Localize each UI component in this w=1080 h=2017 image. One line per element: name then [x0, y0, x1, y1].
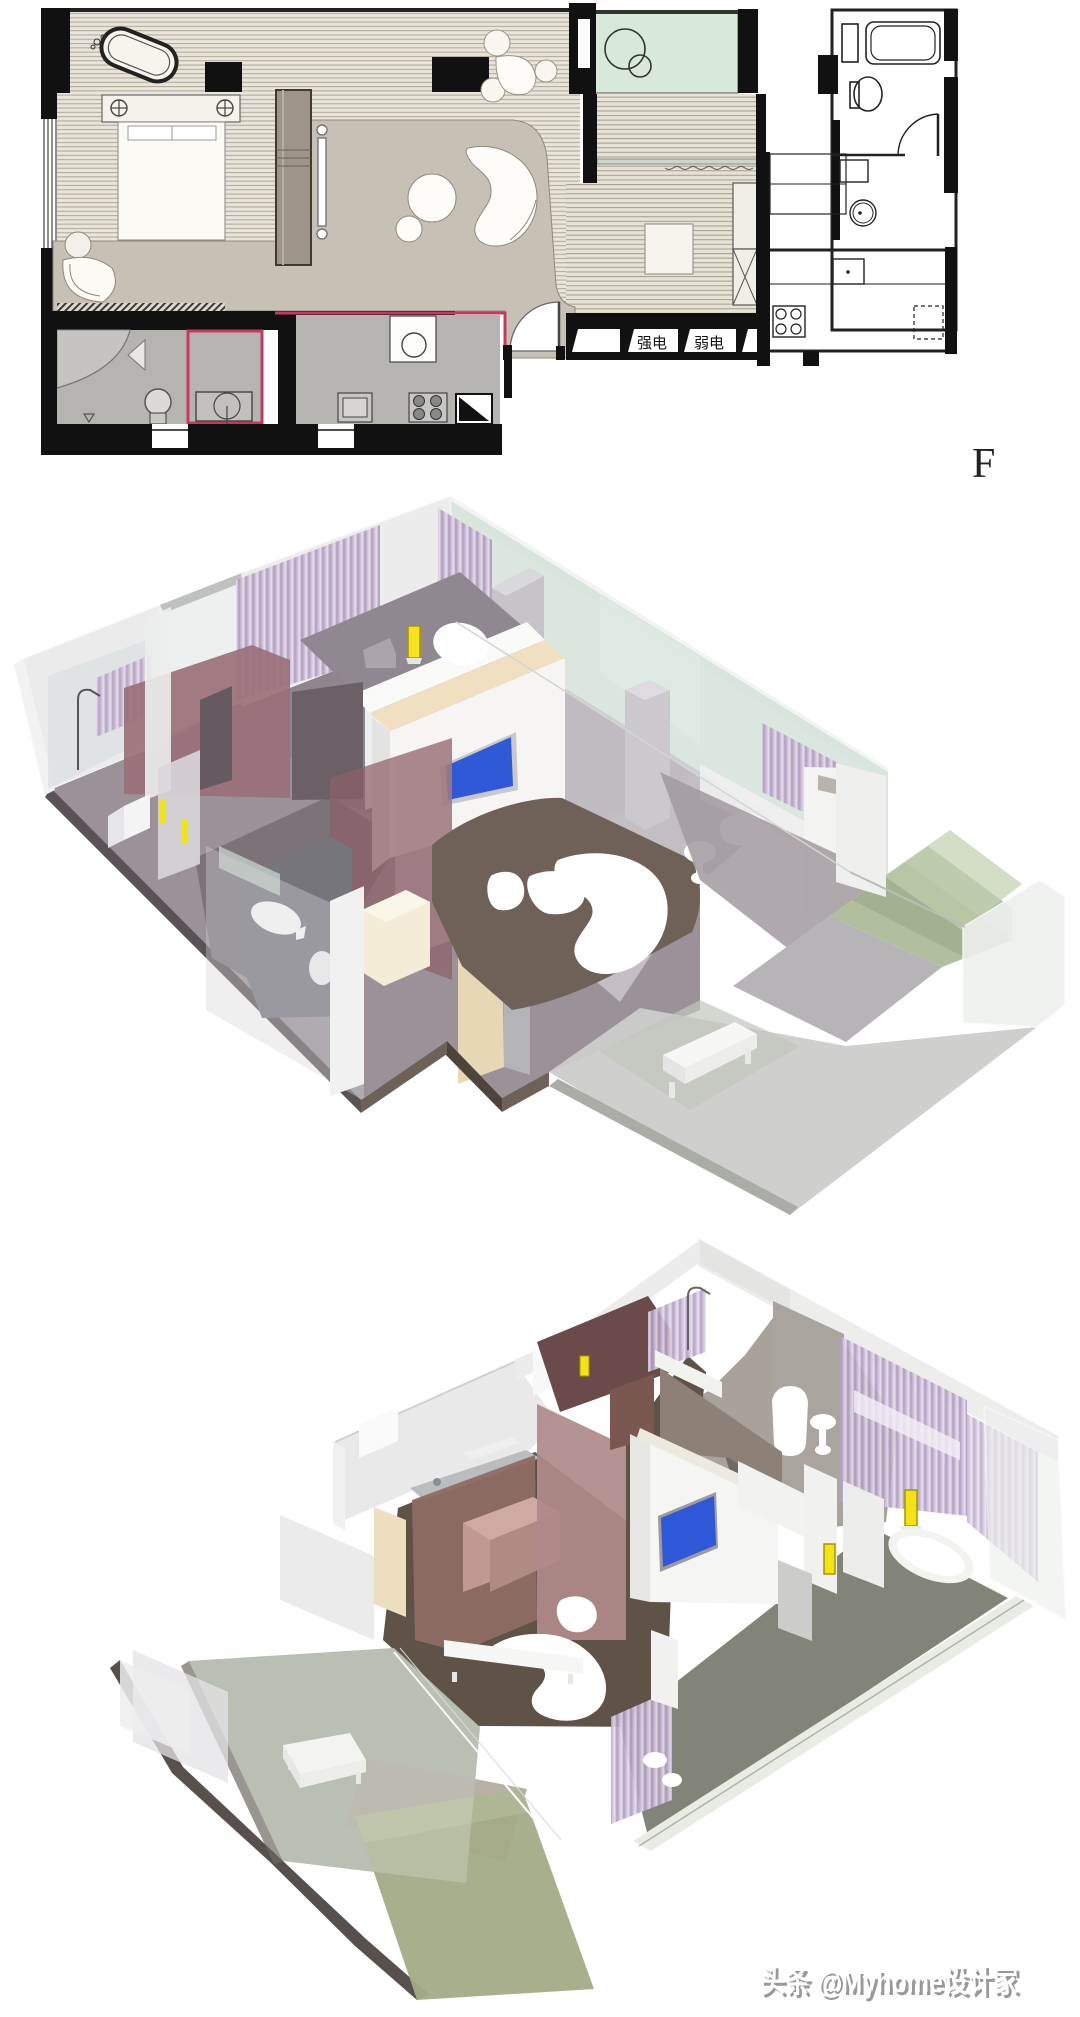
svg-text:F: F [972, 441, 995, 487]
svg-text:头条 @Myhome设计家: 头条 @Myhome设计家 [760, 1964, 1018, 1999]
svg-text:弱电: 弱电 [694, 335, 724, 352]
svg-text:强电: 强电 [637, 335, 667, 352]
